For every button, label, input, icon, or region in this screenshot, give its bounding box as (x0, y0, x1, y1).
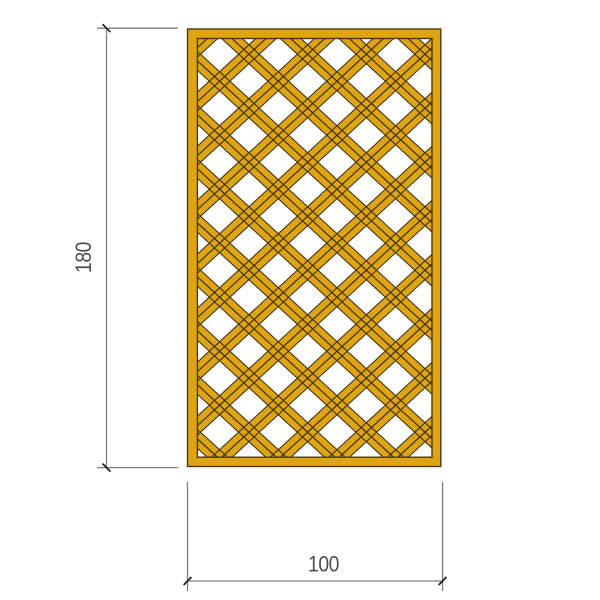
svg-text:100: 100 (308, 552, 339, 576)
svg-text:180: 180 (72, 242, 96, 273)
